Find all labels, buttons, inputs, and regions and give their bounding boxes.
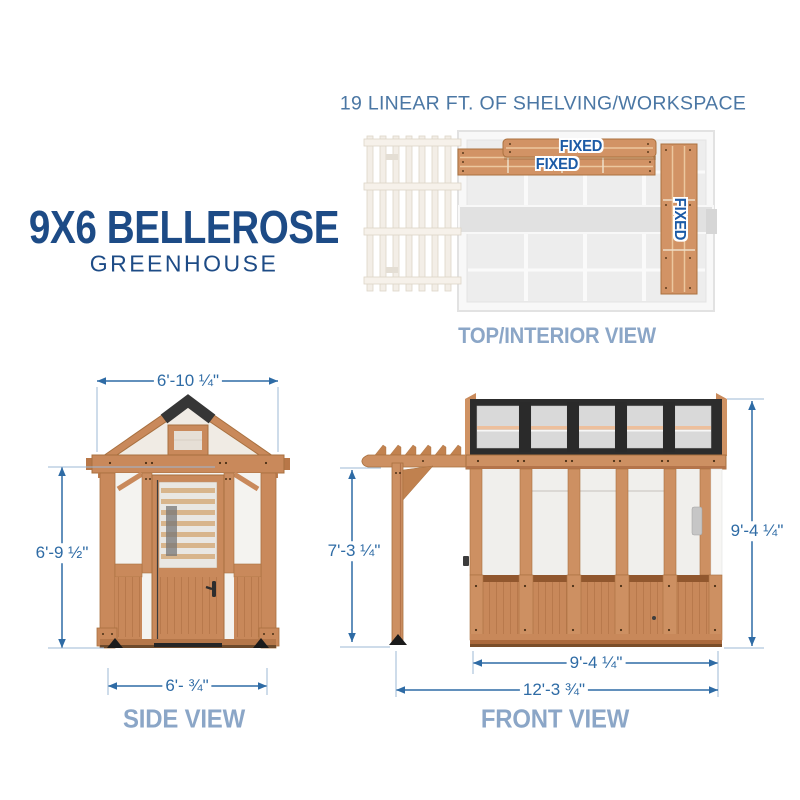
side-view-drawing bbox=[86, 397, 290, 648]
pergola-top-view bbox=[364, 136, 461, 291]
dim-side-base-width: 6'- ¾" bbox=[162, 676, 211, 696]
product-subtitle: GREENHOUSE bbox=[90, 251, 279, 278]
product-title: 9X6 BELLEROSE bbox=[29, 200, 339, 254]
fixed-shelf-label-right: FIXED bbox=[670, 198, 688, 240]
door-opening-top bbox=[706, 209, 717, 234]
door bbox=[152, 475, 224, 645]
dim-side-wall-height: 6'-9 ½" bbox=[33, 543, 92, 563]
roof-windows bbox=[465, 393, 727, 456]
dim-front-overall-height: 9'-4 ¼" bbox=[728, 521, 787, 541]
eave-beam bbox=[92, 455, 284, 473]
front-view-drawing bbox=[362, 393, 727, 647]
pergola-beam bbox=[362, 455, 470, 467]
dim-front-greenhouse-width: 9'-4 ¼" bbox=[567, 653, 626, 673]
pergola-post bbox=[392, 463, 403, 644]
slider-handle bbox=[692, 507, 702, 535]
door-handle bbox=[212, 581, 216, 597]
dim-front-overall-width: 12'-3 ¾" bbox=[520, 680, 588, 700]
pergola-brace bbox=[403, 466, 433, 500]
corner-post-right bbox=[261, 473, 276, 648]
fixed-shelf-label-upper: FIXED bbox=[560, 138, 602, 156]
latch bbox=[463, 556, 469, 566]
dim-side-roof-width: 6'-10 ¼" bbox=[154, 371, 222, 391]
side-view-caption: SIDE VIEW bbox=[123, 704, 245, 735]
front-view-caption: FRONT VIEW bbox=[481, 704, 629, 735]
greenhouse-diagram: 19 LINEAR FT. OF SHELVING/WORKSPACE 9X6 … bbox=[0, 0, 800, 800]
shelving-note: 19 LINEAR FT. OF SHELVING/WORKSPACE bbox=[340, 93, 746, 116]
dim-front-pergola-height: 7'-3 ¼" bbox=[325, 541, 384, 561]
diagram-graphics bbox=[0, 0, 800, 800]
glass-wall bbox=[463, 469, 722, 575]
fixed-shelf-label-lower: FIXED bbox=[536, 156, 578, 174]
wainscot bbox=[470, 575, 722, 647]
top-view-caption: TOP/INTERIOR VIEW bbox=[458, 323, 656, 349]
corner-post-left bbox=[100, 473, 115, 648]
